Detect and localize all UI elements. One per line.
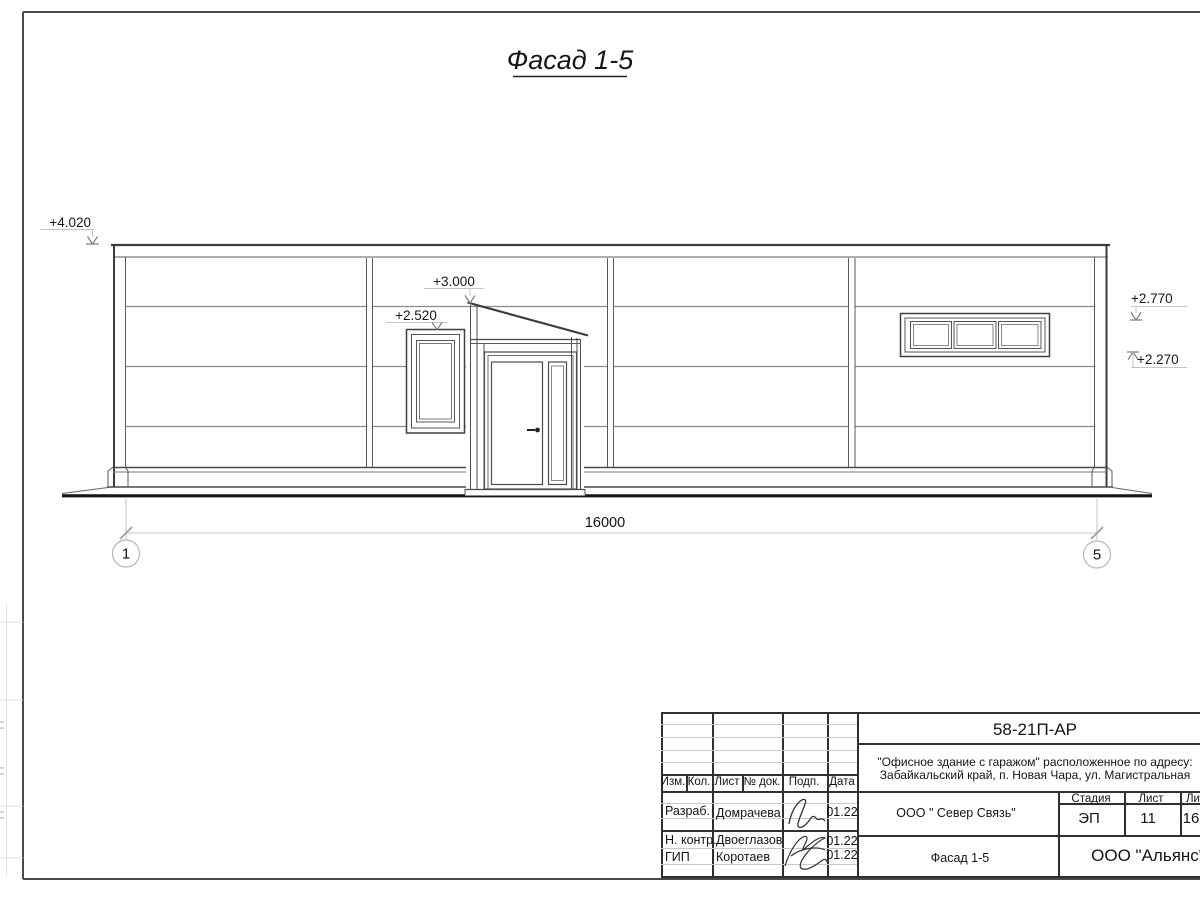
svg-text:+2.770: +2.770 xyxy=(1131,291,1173,306)
tb-header-podp: Подп. xyxy=(789,776,820,788)
tb-header-list: Лист xyxy=(715,776,740,788)
tb-date-0: 01.22 xyxy=(826,805,857,819)
axis-bubble-1: 1 xyxy=(113,540,140,567)
threshold xyxy=(465,489,585,496)
elevation-mark-3000: +3.000 xyxy=(424,274,484,303)
tb-sheets-value: 16 xyxy=(1183,810,1200,827)
dimension-overall: 16000 xyxy=(120,497,1103,541)
elevation-mark-2520: +2.520 xyxy=(386,308,448,330)
tb-name-2: Коротаев xyxy=(716,850,770,864)
svg-text:+4.020: +4.020 xyxy=(49,215,91,230)
elevation-mark-4020: +4.020 xyxy=(40,215,99,244)
drawing-sheet: Фасад 1-5 xyxy=(0,0,1200,900)
canopy xyxy=(468,303,589,336)
signature-gip xyxy=(781,826,831,876)
ground-line xyxy=(62,488,1152,496)
tb-sheet-header: Лист xyxy=(1139,793,1164,805)
tb-project-line2: Забайкальский край, п. Новая Чара, ул. М… xyxy=(877,769,1192,782)
tb-sheet-value: 11 xyxy=(1140,810,1156,827)
tb-sheets-header: Листов xyxy=(1186,793,1200,805)
tb-header-izm: Изм. xyxy=(661,776,686,788)
tb-border xyxy=(661,712,1200,714)
left-window xyxy=(406,329,465,434)
tb-date-1: 01.22 xyxy=(826,834,857,848)
tb-header-data: Дата xyxy=(829,776,854,788)
entrance xyxy=(465,303,588,496)
grid-axes: 1 5 xyxy=(113,540,1111,568)
tb-date-2: 01.22 xyxy=(826,848,857,862)
elevation-mark-2770: +2.770 xyxy=(1130,291,1187,320)
tb-sheet-name: Фасад 1-5 xyxy=(931,851,990,865)
svg-text:+3.000: +3.000 xyxy=(433,274,475,289)
title-block: Изм. Кол. Лист № док. Подп. Дата Разраб.… xyxy=(661,712,1200,878)
tb-header-kol: Кол. xyxy=(688,776,711,788)
right-window xyxy=(900,313,1050,357)
tb-border xyxy=(661,876,1200,878)
svg-text:5: 5 xyxy=(1093,547,1101,564)
svg-text:+2.520: +2.520 xyxy=(395,308,437,323)
tb-stage-value: ЭП xyxy=(1078,810,1100,827)
tb-company: ООО "Альянс" xyxy=(1091,846,1200,866)
tb-doc-code: 58-21П-АР xyxy=(993,720,1077,740)
tb-header-doc: № док. xyxy=(744,776,781,788)
tb-name-0: Домрачева xyxy=(716,806,781,820)
page-title: Фасад 1-5 xyxy=(507,45,634,75)
margin-marks xyxy=(0,604,23,876)
tb-stage-header: Стадия xyxy=(1071,793,1110,805)
tb-name-1: Двоеглазов xyxy=(716,833,782,847)
tb-role-1: Н. контр. xyxy=(665,833,717,847)
tb-role-2: ГИП xyxy=(665,850,690,864)
dimension-16000: 16000 xyxy=(585,515,625,531)
elevation-mark-2270: +2.270 xyxy=(1127,352,1187,368)
tb-client: ООО " Север Связь" xyxy=(896,806,1015,820)
axis-bubble-5: 5 xyxy=(1084,541,1111,568)
svg-text:1: 1 xyxy=(122,546,130,563)
svg-text:+2.270: +2.270 xyxy=(1137,352,1179,367)
tb-role-0: Разраб. xyxy=(665,804,710,818)
drawing-title: Фасад 1-5 xyxy=(507,45,634,77)
